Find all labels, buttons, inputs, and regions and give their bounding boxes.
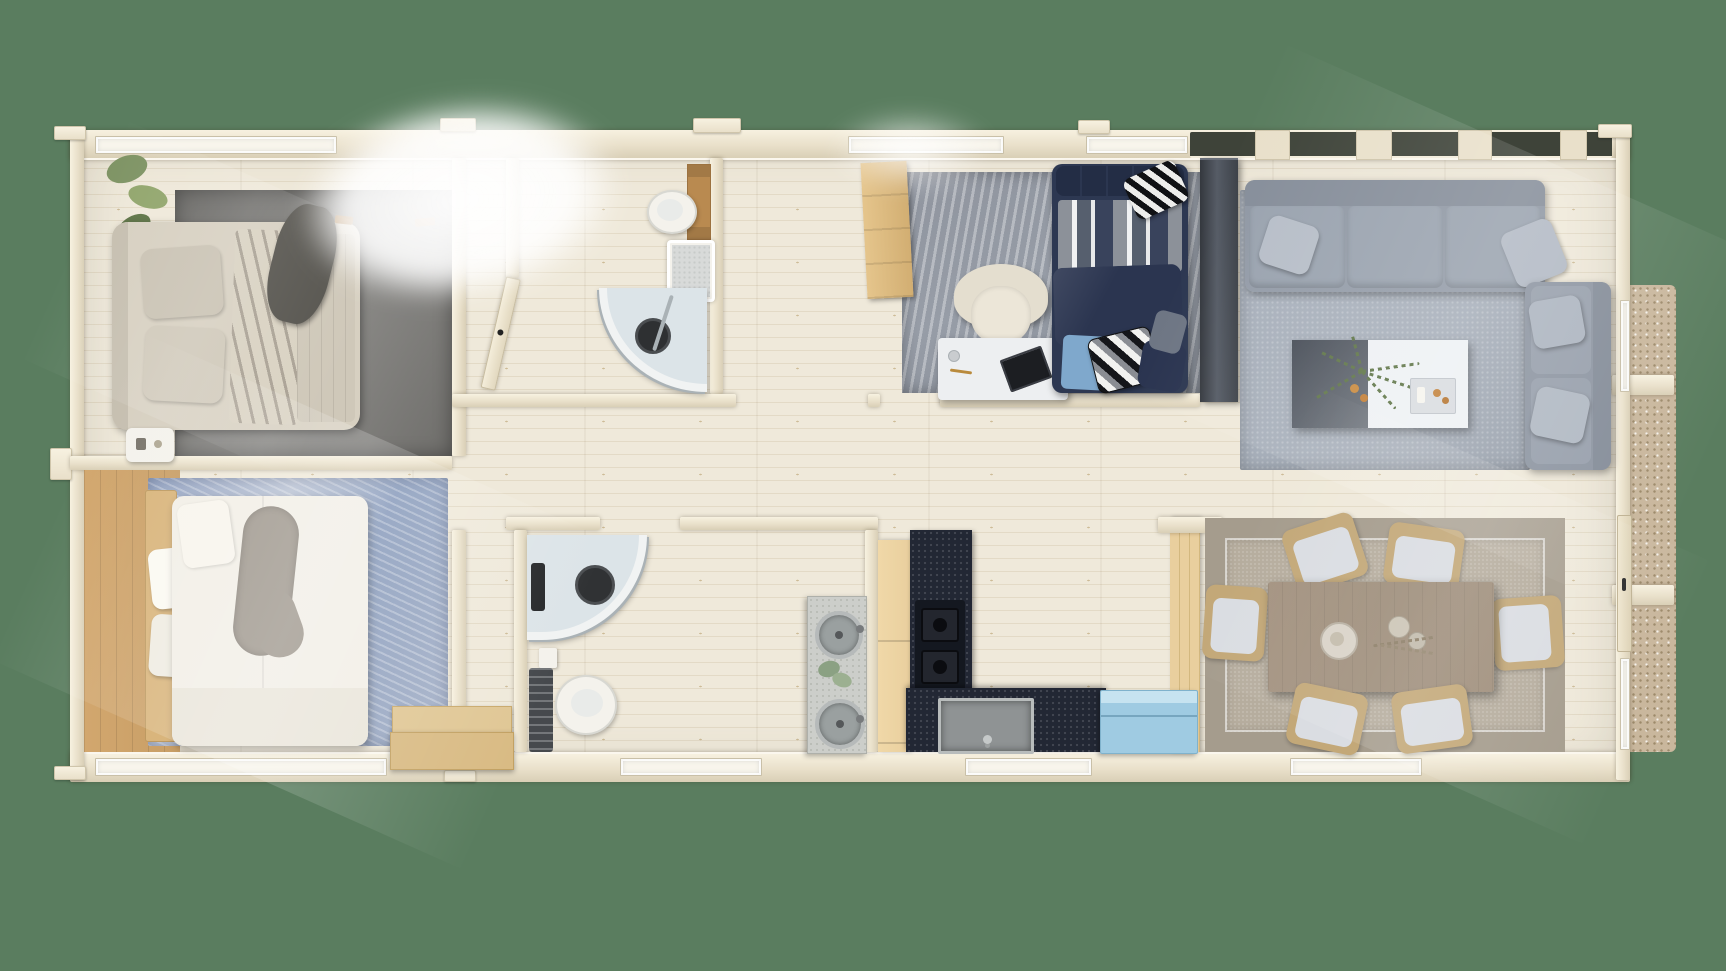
floor-plan-canvas bbox=[0, 0, 1726, 971]
sink-faucet bbox=[983, 735, 992, 744]
bathroom-2 bbox=[527, 530, 865, 752]
window bbox=[620, 758, 762, 776]
window bbox=[1620, 658, 1630, 750]
chest-seam bbox=[1101, 715, 1197, 717]
kitchen-sink bbox=[938, 698, 1034, 754]
burner bbox=[921, 650, 959, 684]
window bbox=[965, 758, 1092, 776]
burner bbox=[921, 608, 959, 642]
faucet bbox=[856, 625, 864, 633]
faucet bbox=[856, 715, 864, 723]
log-end bbox=[54, 126, 86, 140]
fruit bbox=[1360, 394, 1368, 402]
door-handle bbox=[497, 329, 504, 336]
plate-inner bbox=[1330, 632, 1344, 646]
log-end bbox=[50, 448, 72, 480]
chair-cushion bbox=[1291, 525, 1360, 587]
roof-beam bbox=[1255, 130, 1290, 160]
blanket-fold bbox=[172, 688, 368, 746]
armchair-seat bbox=[971, 286, 1031, 344]
chair-cushion bbox=[1391, 535, 1456, 585]
double-bed bbox=[112, 222, 360, 430]
toilet bbox=[647, 190, 697, 234]
log-end bbox=[693, 118, 741, 133]
roof-beam bbox=[1560, 130, 1587, 160]
bedroom-1 bbox=[84, 158, 452, 456]
wardrobe bbox=[1200, 158, 1238, 402]
sofa-cushion bbox=[1347, 206, 1443, 288]
chair-cushion bbox=[1210, 597, 1260, 654]
shower-fixture bbox=[531, 563, 545, 611]
living-room bbox=[1240, 158, 1616, 470]
office-guest-room bbox=[868, 158, 1200, 393]
laptop bbox=[1000, 346, 1053, 393]
pillow bbox=[140, 244, 225, 319]
wall-bath2-left bbox=[514, 530, 527, 752]
window bbox=[1290, 758, 1422, 776]
burner-ring bbox=[933, 618, 947, 632]
pencil bbox=[950, 368, 972, 374]
coffee-table bbox=[1292, 340, 1468, 428]
decor-item bbox=[136, 438, 146, 450]
wall-bedroom1-hall bbox=[452, 158, 466, 456]
chair-cushion bbox=[1400, 697, 1465, 747]
window bbox=[95, 758, 387, 776]
throw-pillow bbox=[1527, 294, 1587, 350]
round-sink bbox=[815, 699, 865, 749]
dried-sprig bbox=[1380, 644, 1436, 656]
window bbox=[1620, 300, 1630, 392]
roof-beam bbox=[1458, 130, 1492, 160]
decor-tray bbox=[1410, 378, 1456, 414]
cistern-box bbox=[539, 648, 557, 668]
striped-blanket bbox=[1058, 200, 1182, 272]
entry-door bbox=[1617, 515, 1632, 652]
sofa-back bbox=[1245, 180, 1545, 206]
cup bbox=[948, 350, 960, 362]
sofa-back bbox=[1593, 282, 1611, 470]
throw-pillow bbox=[1528, 385, 1591, 445]
bottle bbox=[1442, 397, 1449, 404]
corner-shower bbox=[527, 535, 647, 640]
eucalyptus-plant bbox=[830, 670, 854, 690]
corner-sofa-top bbox=[1245, 180, 1545, 292]
gravel-terrace bbox=[1630, 285, 1676, 752]
roof-beam bbox=[1356, 130, 1392, 160]
log-end bbox=[440, 118, 476, 132]
kitchen bbox=[878, 530, 1170, 752]
dining-table bbox=[1268, 582, 1494, 692]
pillow bbox=[176, 499, 236, 570]
skylight-strip bbox=[1190, 132, 1612, 158]
exterior-wall-left bbox=[70, 130, 84, 780]
wall-bath2-top bbox=[680, 517, 878, 530]
decor-item bbox=[154, 440, 162, 448]
log-end bbox=[1078, 120, 1110, 134]
pillow bbox=[142, 325, 226, 404]
daybed bbox=[1052, 164, 1188, 393]
double-sink-vanity bbox=[807, 596, 867, 754]
plant-leaf bbox=[103, 150, 151, 189]
dining-chair-3 bbox=[1201, 584, 1268, 662]
log-end bbox=[54, 766, 86, 780]
wall-bath1-bottom bbox=[452, 394, 736, 407]
chair-cushion bbox=[1498, 604, 1552, 663]
centerpiece-plate bbox=[1320, 622, 1358, 660]
door-handle bbox=[1622, 578, 1626, 591]
fern-plant bbox=[1362, 370, 1364, 372]
nightstand bbox=[126, 428, 174, 462]
dining-chair-6 bbox=[1491, 595, 1566, 672]
wall-bath1-left bbox=[506, 158, 519, 278]
toilet-seat bbox=[571, 689, 603, 717]
radiator bbox=[529, 668, 553, 752]
chest-freezer bbox=[1100, 690, 1198, 754]
log-end bbox=[1598, 124, 1632, 138]
dining-room bbox=[1200, 470, 1616, 752]
corner-sofa-right bbox=[1525, 282, 1611, 470]
shower-head bbox=[575, 565, 615, 605]
chair-cushion bbox=[1294, 695, 1359, 748]
bathroom-1 bbox=[519, 158, 710, 394]
gas-hob bbox=[915, 600, 965, 692]
wall-office-bottom bbox=[868, 394, 880, 407]
log-end bbox=[444, 770, 476, 782]
candle bbox=[1417, 387, 1425, 403]
entry-steps bbox=[390, 732, 514, 770]
double-bed bbox=[172, 496, 368, 746]
toilet bbox=[555, 675, 617, 735]
dining-chair-5 bbox=[1390, 683, 1474, 755]
centerpiece-bowl bbox=[1388, 616, 1410, 638]
bottle bbox=[1433, 389, 1441, 397]
corner-shower bbox=[599, 288, 707, 392]
burner-ring bbox=[933, 660, 947, 674]
entry-steps bbox=[392, 706, 512, 734]
desk bbox=[938, 338, 1068, 400]
fruit bbox=[1350, 384, 1359, 393]
window bbox=[1086, 136, 1188, 154]
headboard bbox=[112, 222, 128, 430]
round-sink bbox=[815, 611, 863, 659]
window bbox=[848, 136, 1004, 154]
toilet-seat bbox=[657, 199, 683, 221]
wood-dresser bbox=[860, 161, 913, 299]
wall-bath2-top bbox=[506, 517, 600, 530]
plant-leaf bbox=[126, 181, 170, 213]
